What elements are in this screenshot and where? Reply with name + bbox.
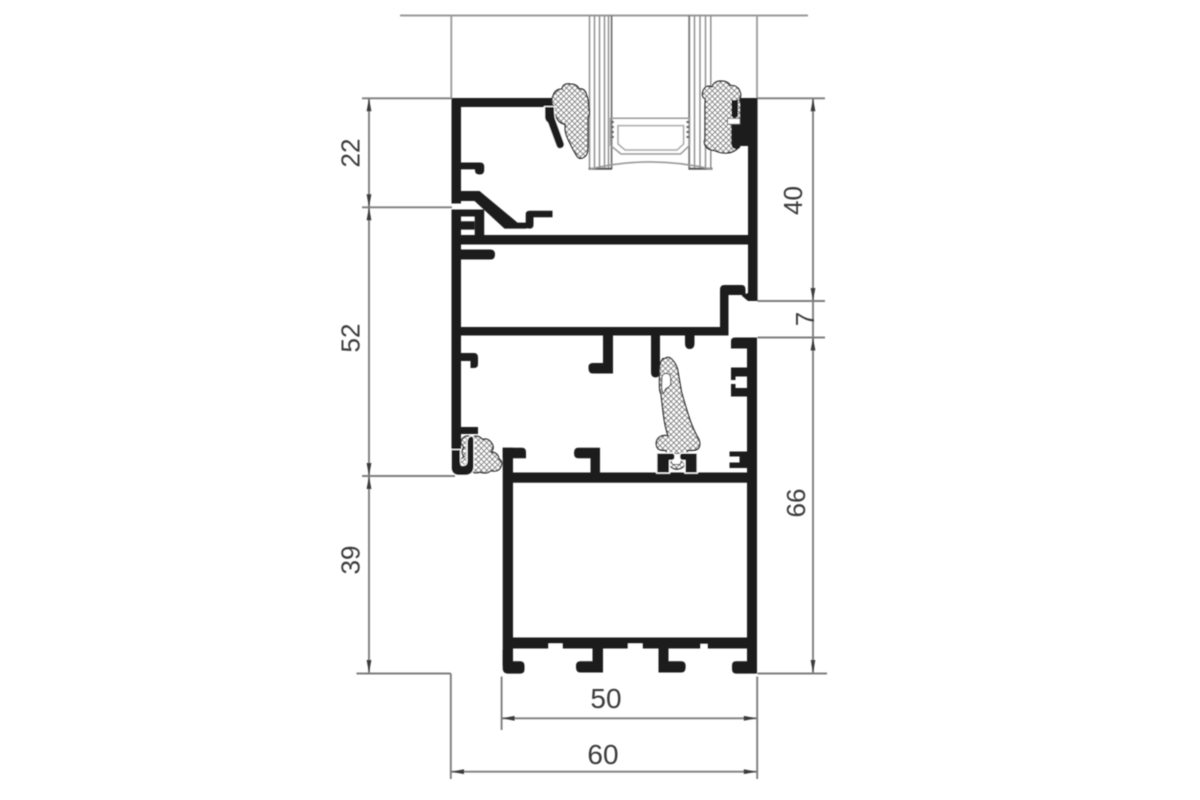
- svg-text:50: 50: [590, 683, 621, 714]
- svg-text:7: 7: [790, 312, 820, 326]
- svg-text:52: 52: [335, 324, 365, 353]
- svg-text:40: 40: [778, 186, 808, 215]
- svg-text:39: 39: [335, 546, 365, 575]
- svg-text:60: 60: [587, 739, 618, 770]
- svg-text:66: 66: [781, 489, 811, 518]
- svg-text:22: 22: [335, 139, 365, 168]
